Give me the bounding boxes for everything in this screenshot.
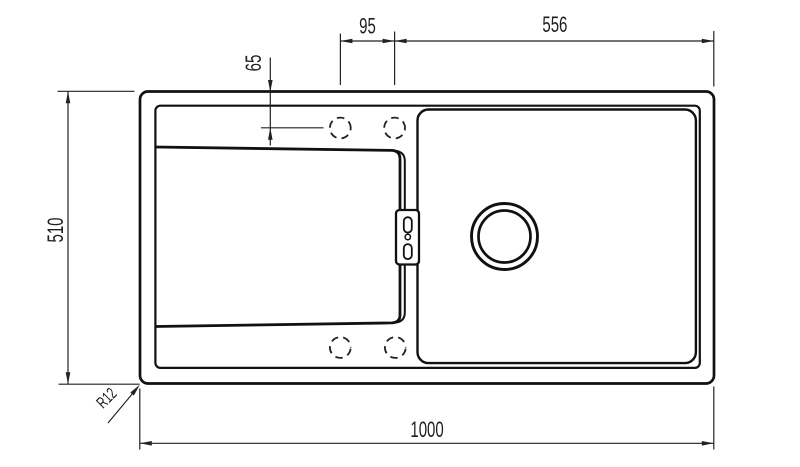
svg-text:95: 95 bbox=[359, 14, 376, 39]
svg-text:1000: 1000 bbox=[410, 417, 443, 442]
svg-text:65: 65 bbox=[241, 55, 266, 72]
svg-text:510: 510 bbox=[43, 218, 68, 243]
svg-text:556: 556 bbox=[542, 12, 567, 37]
